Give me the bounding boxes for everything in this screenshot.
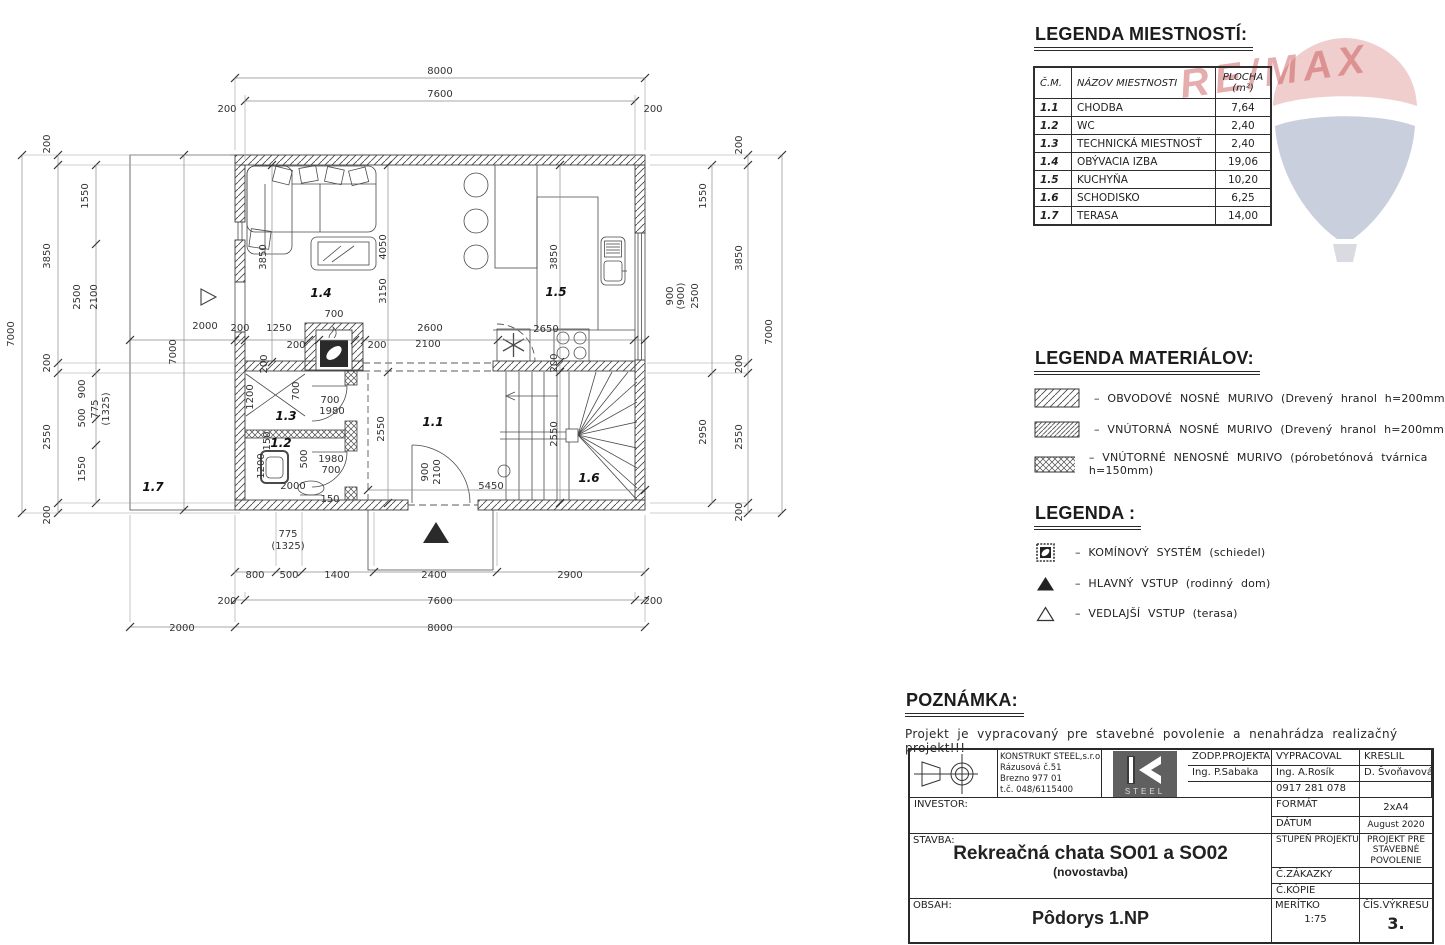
room-number-label: 1.2 [270,436,291,450]
dim-label: 7000 [6,321,17,346]
room-name-cell: OBÝVACIA IZBA [1072,153,1216,171]
dim-label: 2550 [42,424,53,449]
terrace-entrance-triangle [201,289,216,305]
stavba-cell: STAVBA: Rekreačná chata SO01 a SO02 (nov… [910,834,1272,899]
room-number-label: 1.5 [545,285,566,299]
sofa [247,166,376,232]
zodp-name: Ing. P.Sabaka [1188,766,1272,782]
dim-label: 7600 [427,596,452,607]
dim-label: 2000 [169,623,194,634]
investor-cell: INVESTOR: [910,798,1272,834]
dim-label: 200 [42,353,53,372]
coffee-table [311,237,376,270]
project-title: Rekreačná chata SO01 a SO02 [914,843,1267,865]
room-legend-row: 1.6SCHODISKO6,25 [1035,189,1271,207]
room-number-cell: 1.1 [1035,99,1072,117]
dim-label: 7000 [168,339,179,364]
dim-label: 1250 [266,323,291,334]
dim-label: 200 [259,354,270,373]
dim-label: 700 [291,381,302,400]
col-header-area: PLOCHA(m²) [1216,68,1271,99]
dim-label: 200 [367,340,386,351]
room-legend-table: Č.M. NÁZOV MIESTNOSTI PLOCHA(m²) 1.1CHOD… [1034,67,1271,225]
chimney-icon [1036,543,1055,562]
datum-value: August 2020 [1360,817,1432,834]
vypracoval-phone: 0917 281 078 [1272,782,1360,798]
projection-symbol [910,750,998,798]
dim-label: 8000 [427,66,452,77]
room-number-cell: 1.3 [1035,135,1072,153]
dim-label: 1550 [698,183,709,208]
dim-label: 2550 [549,421,560,446]
dim-label: 1200 [245,384,256,409]
room-name-cell: SCHODISKO [1072,189,1216,207]
dim-label: 150 [320,494,339,505]
dim-label: 4050 [378,234,389,259]
room-number-cell: 1.2 [1035,117,1072,135]
svg-text:STEEL: STEEL [1125,787,1165,796]
dashed-lines [363,324,535,505]
vypracoval-label: VYPRACOVAL [1272,750,1360,766]
dim-label: 2100 [415,339,440,350]
room-number-label: 1.1 [422,415,443,429]
note-block: POZNÁMKA: Projekt je vypracovaný pre sta… [905,690,1440,755]
freezer-snowflake-icon [503,333,524,357]
drawing-title: Pôdorys 1.NP [914,908,1267,929]
room-number-label: 1.3 [275,409,296,423]
dim-label: 200 [230,323,249,334]
room-number-labels: 1.11.21.31.41.51.61.7 [142,285,599,494]
room-number-label: 1.4 [310,286,331,300]
filled-triangle-icon [1036,575,1055,592]
symbol-item: – VEDLAJŠÍ VSTUP (terasa) [1036,605,1445,622]
room-name-cell: KUCHYŇA [1072,171,1216,189]
datum-label: DÁTUM [1272,817,1360,834]
room-number-cell: 1.6 [1035,189,1072,207]
format-label: FORMÁT [1272,798,1360,817]
dim-label: 2000 [192,321,217,332]
dim-label: 200 [643,104,662,115]
room-name-cell: TERASA [1072,207,1216,225]
room-area-cell: 14,00 [1216,207,1271,225]
steel-logo: STEEL [1102,750,1188,798]
dim-label: 1980 [318,454,343,465]
room-name-cell: TECHNICKÁ MIESTNOSŤ [1072,135,1216,153]
firm-address: KONSTRUKT STEEL,s.r.o.Rázusová č.51 Brez… [998,750,1102,798]
main-entrance-triangle [423,522,449,543]
dim-label: 2100 [89,284,100,309]
dim-label: 500 [299,449,310,468]
open-triangle-icon [1036,605,1055,622]
col-header-name: NÁZOV MIESTNOSTI [1072,68,1216,99]
zakazky-label: Č.ZÁKAZKY [1272,868,1360,884]
meritko-cell: MERÍTKO 1:75 [1272,899,1360,942]
room-legend-row: 1.1CHODBA7,64 [1035,99,1271,117]
room-name-cell: WC [1072,117,1216,135]
room-area-cell: 2,40 [1216,135,1271,153]
dim-label: 900 [420,462,431,481]
stupen-label: STUPEŇ PROJEKTU [1272,834,1360,868]
dim-label: 500 [279,570,298,581]
note-title: POZNÁMKA: [905,690,1024,717]
dim-label: 800 [245,570,264,581]
room-area-cell: 19,06 [1216,153,1271,171]
room-legend-row: 1.2WC2,40 [1035,117,1271,135]
cis-cell: ČÍS.VÝKRESU 3. [1360,899,1432,942]
staircase [498,372,637,500]
dim-label: 1400 [324,570,349,581]
floor-plan-drawing: 8000760020020080050014002400290020076002… [0,0,810,670]
dim-label: 3150 [378,278,389,303]
dim-label: 2100 [432,459,443,484]
dim-label: 2600 [417,323,442,334]
room-number-cell: 1.5 [1035,171,1072,189]
dim-label: 2900 [557,570,582,581]
dim-label: 200 [42,505,53,524]
obsah-cell: OBSAH: Pôdorys 1.NP [910,899,1272,942]
room-name-cell: CHODBA [1072,99,1216,117]
symbol-item: – KOMÍNOVÝ SYSTÉM (schiedel) [1036,543,1445,562]
drawing-sheet: 8000760020020080050014002400290020076002… [0,0,1445,945]
kopie-label: Č.KÓPIE [1272,884,1360,899]
dim-label: 200 [42,134,53,153]
kreslil-label: KRESLIL [1360,750,1432,766]
dim-label: 2000 [280,481,305,492]
dim-label: 3850 [42,243,53,268]
dim-label: 200 [549,353,560,372]
room-legend: LEGENDA MIESTNOSTÍ: Č.M. NÁZOV MIESTNOST… [1034,24,1284,225]
dim-label: 3850 [549,244,560,269]
dim-label: (1325) [101,392,112,425]
room-number-cell: 1.4 [1035,153,1072,171]
dim-label: (900) [676,282,687,309]
room-area-cell: 2,40 [1216,117,1271,135]
dim-label: 2500 [72,284,83,309]
material-legend-title: LEGENDA MATERIÁLOV: [1034,348,1260,375]
dim-label: 2400 [421,570,446,581]
symbol-legend-title: LEGENDA : [1034,503,1141,530]
room-number-cell: 1.7 [1035,207,1072,225]
dim-label: 700 [324,309,343,320]
room-number-label: 1.7 [142,480,164,494]
material-item: – VNÚTORNÁ NOSNÉ MURIVO (Drevený hranol … [1034,421,1445,438]
project-subtitle: (novostavba) [914,865,1267,879]
room-legend-title: LEGENDA MIESTNOSTÍ: [1034,24,1253,51]
dim-label: 2950 [698,419,709,444]
dim-label: 3850 [734,245,745,270]
dim-label: 775 [278,529,297,540]
hatch-outer-wall-icon [1034,388,1080,408]
material-item: – VNÚTORNÉ NENOSNÉ MURIVO (pórobetónová … [1034,451,1445,477]
dim-label: 7600 [427,89,452,100]
dim-label: 200 [734,354,745,373]
kreslil-empty [1360,782,1432,798]
dim-label: 200 [734,135,745,154]
dim-label: 775 [90,399,101,418]
room-legend-row: 1.7TERASA14,00 [1035,207,1271,225]
symbol-legend: LEGENDA : – KOMÍNOVÝ SYSTÉM (schiedel) –… [1034,503,1445,622]
dim-label: 200 [286,340,305,351]
dim-label: 1200 [256,453,267,478]
dim-label: 200 [734,502,745,521]
zodp-empty [1188,782,1272,798]
room-area-cell: 6,25 [1216,189,1271,207]
material-legend: LEGENDA MATERIÁLOV: – OBVODOVÉ NOSNÉ MUR… [1034,348,1445,477]
title-block: ZODP.PROJEKTANT VYPRACOVAL KRESLIL KONST… [908,748,1434,944]
room-legend-row: 1.5KUCHYŇA10,20 [1035,171,1271,189]
zakazky-value [1360,868,1432,884]
room-area-cell: 10,20 [1216,171,1271,189]
dim-label: 7000 [764,319,775,344]
dim-label: 900 [665,286,676,305]
fireplace-chimney [316,327,352,370]
sink-icon [601,237,627,285]
dim-label: 200 [217,104,236,115]
dim-label: 900 [77,379,88,398]
vypracoval-name: Ing. A.Rosík [1272,766,1360,782]
hatch-inner-wall-icon [1034,421,1080,438]
stupen-value: PROJEKT PRE STAVEBNÉ POVOLENIE [1360,834,1432,868]
dim-label: 2550 [376,416,387,441]
material-item: – OBVODOVÉ NOSNÉ MURIVO (Drevený hranol … [1034,388,1445,408]
kopie-value [1360,884,1432,899]
dim-label: (1325) [271,541,304,552]
room-area-cell: 7,64 [1216,99,1271,117]
dim-label: 2500 [690,283,701,308]
dim-label: 700 [321,465,340,476]
format-value: 2xA4 [1360,798,1432,817]
dim-label: 5450 [478,481,503,492]
room-legend-row: 1.3TECHNICKÁ MIESTNOSŤ2,40 [1035,135,1271,153]
dim-label: 1550 [80,183,91,208]
room-number-label: 1.6 [578,471,599,485]
dim-label: 1980 [319,406,344,417]
dim-label: 700 [320,395,339,406]
dim-label: 2650 [533,324,558,335]
dim-label: 200 [217,596,236,607]
col-header-num: Č.M. [1035,68,1072,99]
dim-label: 200 [643,596,662,607]
dim-label: 3850 [258,244,269,269]
kreslil-name: D. Švoňavová [1360,766,1432,782]
dimension-labels: 8000760020020080050014002400290020076002… [6,66,775,634]
room-legend-row: 1.4OBÝVACIA IZBA19,06 [1035,153,1271,171]
crosshatch-partition-icon [1034,456,1075,473]
dim-label: 500 [77,408,88,427]
dim-label: 8000 [427,623,452,634]
dim-label: 1550 [77,456,88,481]
zodp-label: ZODP.PROJEKTANT [1188,750,1272,766]
dim-label: 2550 [734,424,745,449]
symbol-item: – HLAVNÝ VSTUP (rodinný dom) [1036,575,1445,592]
